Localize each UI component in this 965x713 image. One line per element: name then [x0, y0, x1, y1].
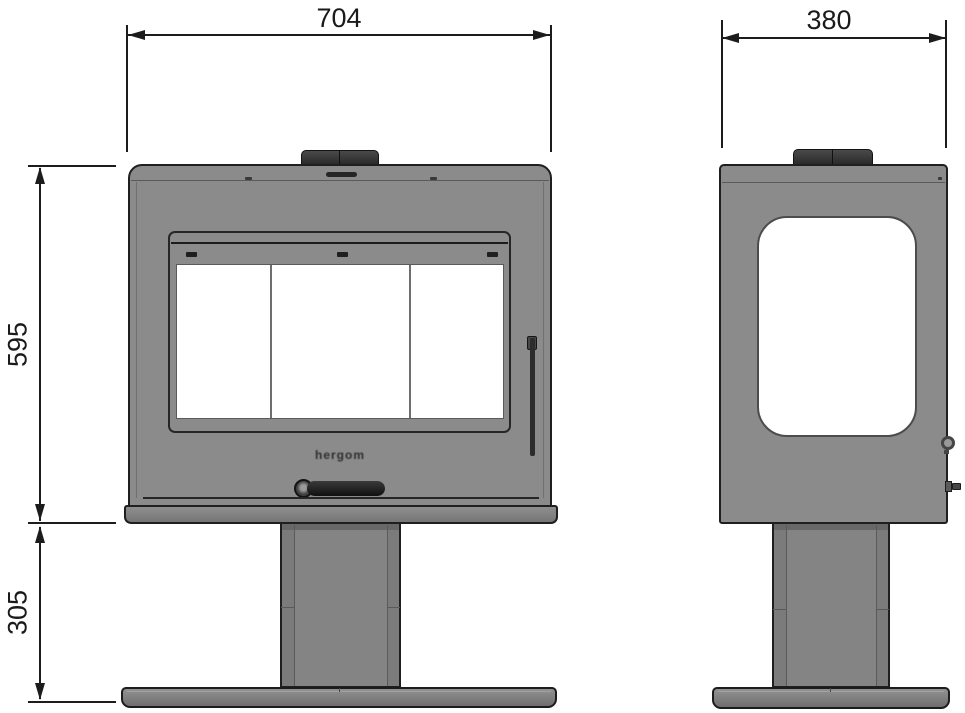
- door-handle-rod: [530, 338, 535, 456]
- glass-clip-left: [186, 252, 197, 257]
- glass-divider-right: [409, 265, 411, 418]
- ash-drawer-handle: [307, 481, 385, 496]
- pedestal-top-shadow-front: [282, 524, 399, 530]
- stove-technical-drawing: 704 380 595 305: [0, 0, 965, 713]
- side-window-glass: [757, 216, 917, 437]
- base-plate-front-center-seam: [339, 688, 340, 692]
- air-valve-bolt-tip: [952, 483, 961, 490]
- pedestal-top-shadow-side: [774, 524, 888, 530]
- door-latch-stem: [944, 450, 949, 454]
- glass-clip-center: [337, 252, 348, 257]
- top-plate-slot: [326, 172, 357, 177]
- door-bottom-edge: [143, 497, 539, 499]
- door-glass: [176, 264, 504, 419]
- pedestal-side-inner-line-left: [786, 525, 787, 686]
- air-valve-bolt-base: [945, 481, 952, 492]
- top-plate-screw-side: [938, 177, 942, 180]
- glass-divider-left: [270, 265, 272, 418]
- firebox-bottom-plate-front: [124, 505, 558, 524]
- pedestal-front-seam-right: [387, 607, 400, 608]
- pedestal-column-side-face: [787, 524, 876, 686]
- pedestal-side-seam-left: [773, 609, 787, 610]
- top-plate-edge-side: [722, 182, 945, 183]
- pedestal-side-seam-right: [876, 609, 889, 610]
- door-top-edge: [171, 242, 508, 244]
- pedestal-front-inner-line-right: [387, 525, 388, 686]
- top-plate-edge-front: [131, 180, 549, 181]
- base-plate-side-center-seam: [830, 688, 831, 692]
- brand-logo-text: hergom: [290, 448, 390, 462]
- door-latch-keeper: [941, 436, 955, 450]
- pedestal-column-front-face: [295, 524, 388, 686]
- top-plate-screw-right: [430, 177, 437, 180]
- side-panel-line-right: [543, 182, 544, 498]
- glass-clip-right: [487, 252, 498, 257]
- side-panel-line-left: [136, 182, 137, 498]
- pedestal-side-inner-line-right: [876, 525, 877, 686]
- pedestal-front-inner-line-left: [294, 525, 295, 686]
- base-plate-side-highlight: [718, 691, 944, 692]
- side-view: [600, 0, 965, 713]
- top-plate-screw-left: [245, 177, 252, 180]
- front-view: hergom: [0, 0, 600, 713]
- pedestal-front-seam-left: [281, 607, 295, 608]
